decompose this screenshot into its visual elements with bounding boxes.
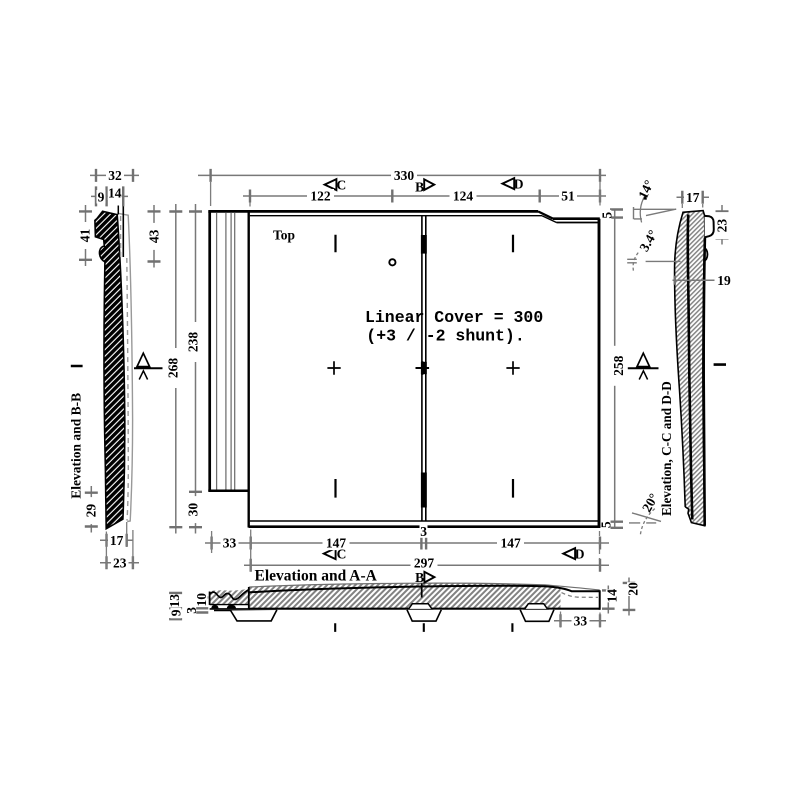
- svg-text:29: 29: [83, 504, 98, 518]
- svg-text:5: 5: [600, 212, 615, 219]
- svg-text:23: 23: [715, 219, 730, 233]
- svg-text:14: 14: [108, 186, 122, 201]
- svg-text:(+3 / -2 shunt).: (+3 / -2 shunt).: [366, 327, 524, 346]
- svg-text:33: 33: [223, 536, 237, 551]
- svg-text:19: 19: [717, 273, 731, 288]
- svg-text:Elevation, C-C and D-D: Elevation, C-C and D-D: [659, 381, 674, 516]
- svg-text:C: C: [337, 178, 347, 193]
- svg-text:41: 41: [78, 229, 93, 243]
- svg-text:33: 33: [574, 614, 588, 629]
- svg-text:Linear Cover = 300: Linear Cover = 300: [365, 308, 543, 327]
- svg-text:238: 238: [185, 332, 200, 353]
- svg-text:330: 330: [394, 168, 415, 183]
- svg-text:30: 30: [185, 503, 200, 517]
- svg-text:147: 147: [500, 535, 521, 550]
- svg-text:D: D: [514, 176, 524, 191]
- svg-text:B: B: [415, 570, 424, 585]
- svg-text:23: 23: [113, 556, 127, 571]
- svg-text:C: C: [337, 546, 347, 561]
- svg-text:13: 13: [167, 594, 182, 608]
- svg-text:10: 10: [194, 593, 209, 607]
- svg-text:14°: 14°: [635, 178, 657, 201]
- svg-text:43: 43: [146, 229, 161, 243]
- svg-text:9: 9: [169, 609, 184, 616]
- svg-text:124: 124: [453, 189, 474, 204]
- svg-text:Elevation and A-A: Elevation and A-A: [255, 568, 378, 585]
- svg-text:3.4°: 3.4°: [636, 227, 660, 254]
- svg-text:268: 268: [166, 358, 181, 379]
- svg-text:32: 32: [108, 168, 122, 183]
- svg-text:122: 122: [310, 189, 331, 204]
- svg-text:258: 258: [611, 355, 626, 376]
- svg-text:Top: Top: [273, 228, 295, 243]
- svg-text:Elevation and B-B: Elevation and B-B: [68, 393, 83, 499]
- svg-text:3: 3: [184, 607, 199, 614]
- svg-text:20: 20: [626, 582, 641, 596]
- svg-text:17: 17: [110, 533, 124, 548]
- svg-text:297: 297: [414, 556, 435, 571]
- svg-text:D: D: [575, 546, 585, 561]
- svg-text:9: 9: [98, 189, 105, 204]
- svg-text:14: 14: [605, 589, 620, 603]
- svg-text:51: 51: [561, 189, 575, 204]
- svg-text:5: 5: [599, 521, 614, 528]
- svg-text:17: 17: [686, 190, 700, 205]
- svg-text:B: B: [415, 179, 424, 194]
- svg-text:3: 3: [420, 524, 427, 539]
